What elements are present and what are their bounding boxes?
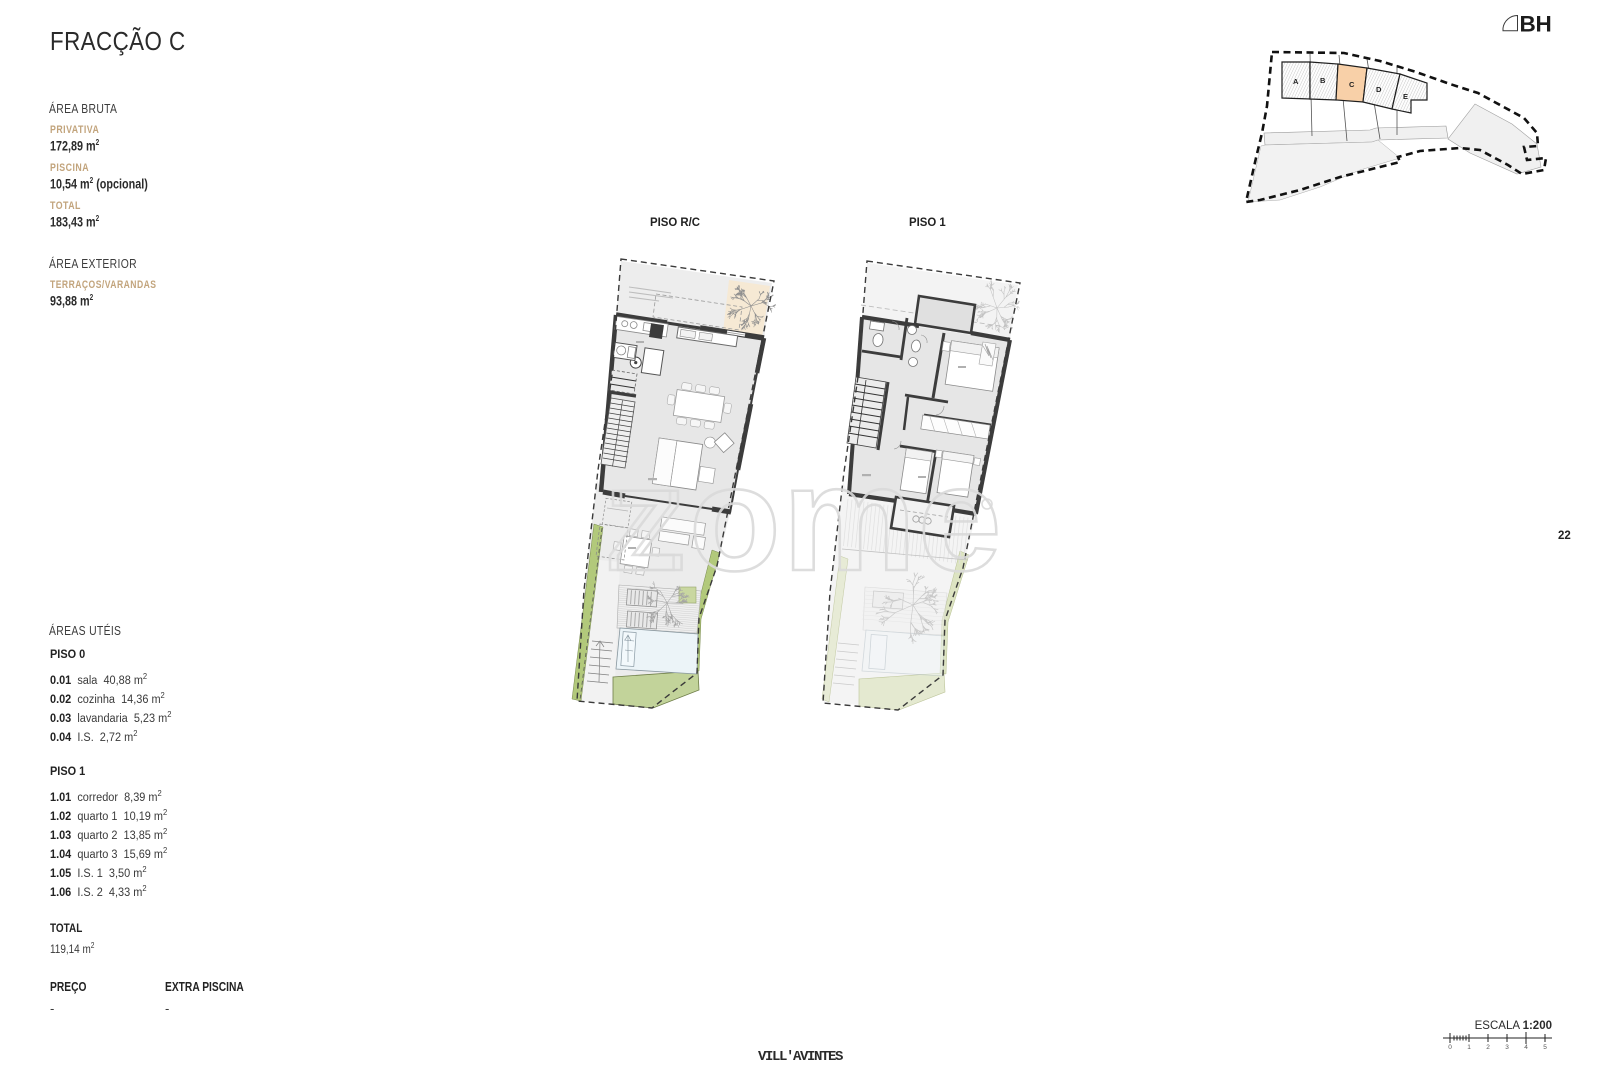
svg-text:A: A	[1293, 77, 1299, 86]
svg-text:0: 0	[1448, 1044, 1452, 1051]
svg-text:ESCALA 1:200: ESCALA 1:200	[1475, 1020, 1552, 1032]
svg-text:E: E	[1403, 92, 1408, 101]
svg-text:3: 3	[1505, 1044, 1509, 1051]
svg-text:C: C	[1349, 80, 1355, 89]
svg-text:BH: BH	[1520, 12, 1552, 37]
svg-text:zome: zome	[612, 434, 1003, 602]
svg-text:2: 2	[1486, 1044, 1490, 1051]
svg-text:1: 1	[1467, 1044, 1471, 1051]
svg-text:D: D	[1376, 85, 1382, 94]
svg-text:4: 4	[1524, 1044, 1528, 1051]
svg-text:B: B	[1320, 76, 1326, 85]
svg-text:5: 5	[1543, 1044, 1547, 1051]
